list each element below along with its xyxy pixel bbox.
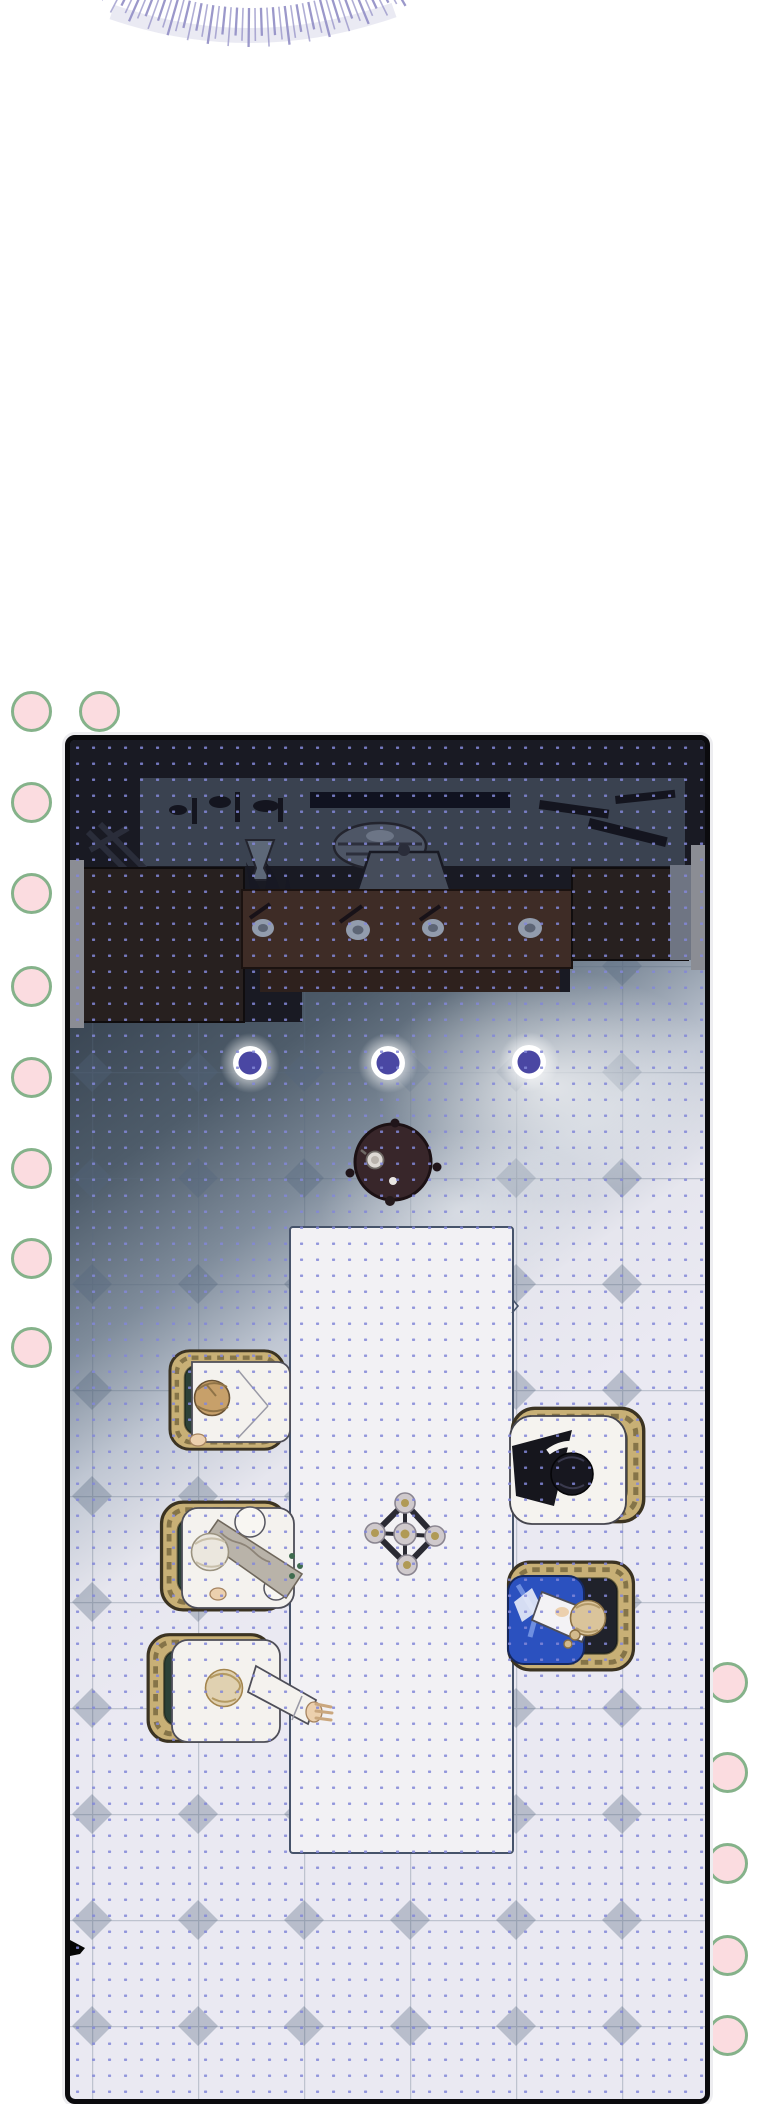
margin-dot — [11, 1148, 52, 1189]
halftone-overlay — [70, 740, 705, 2099]
burst-ray — [236, 8, 238, 36]
margin-dot — [11, 782, 52, 823]
margin-dot — [707, 1752, 748, 1793]
margin-dot — [79, 691, 120, 732]
panel-art — [70, 740, 705, 2099]
burst-ray — [376, 0, 389, 3]
speedline-burst — [102, 0, 422, 62]
margin-dot — [11, 1327, 52, 1368]
margin-dot — [11, 873, 52, 914]
comic-panel — [65, 735, 710, 2104]
burst-ray — [261, 8, 262, 36]
margin-dot — [11, 691, 52, 732]
burst-ray — [242, 8, 243, 41]
burst-ray — [102, 0, 118, 1]
margin-dot — [707, 1662, 748, 1703]
margin-dot — [707, 1935, 748, 1976]
page: { "meta": { "kind": "webtoon-comic-panel… — [0, 0, 760, 2104]
margin-dot — [707, 1843, 748, 1884]
margin-dot — [11, 966, 52, 1007]
margin-dot — [707, 2015, 748, 2056]
margin-dot — [11, 1238, 52, 1279]
margin-dot — [11, 1057, 52, 1098]
burst-ray — [121, 0, 133, 6]
